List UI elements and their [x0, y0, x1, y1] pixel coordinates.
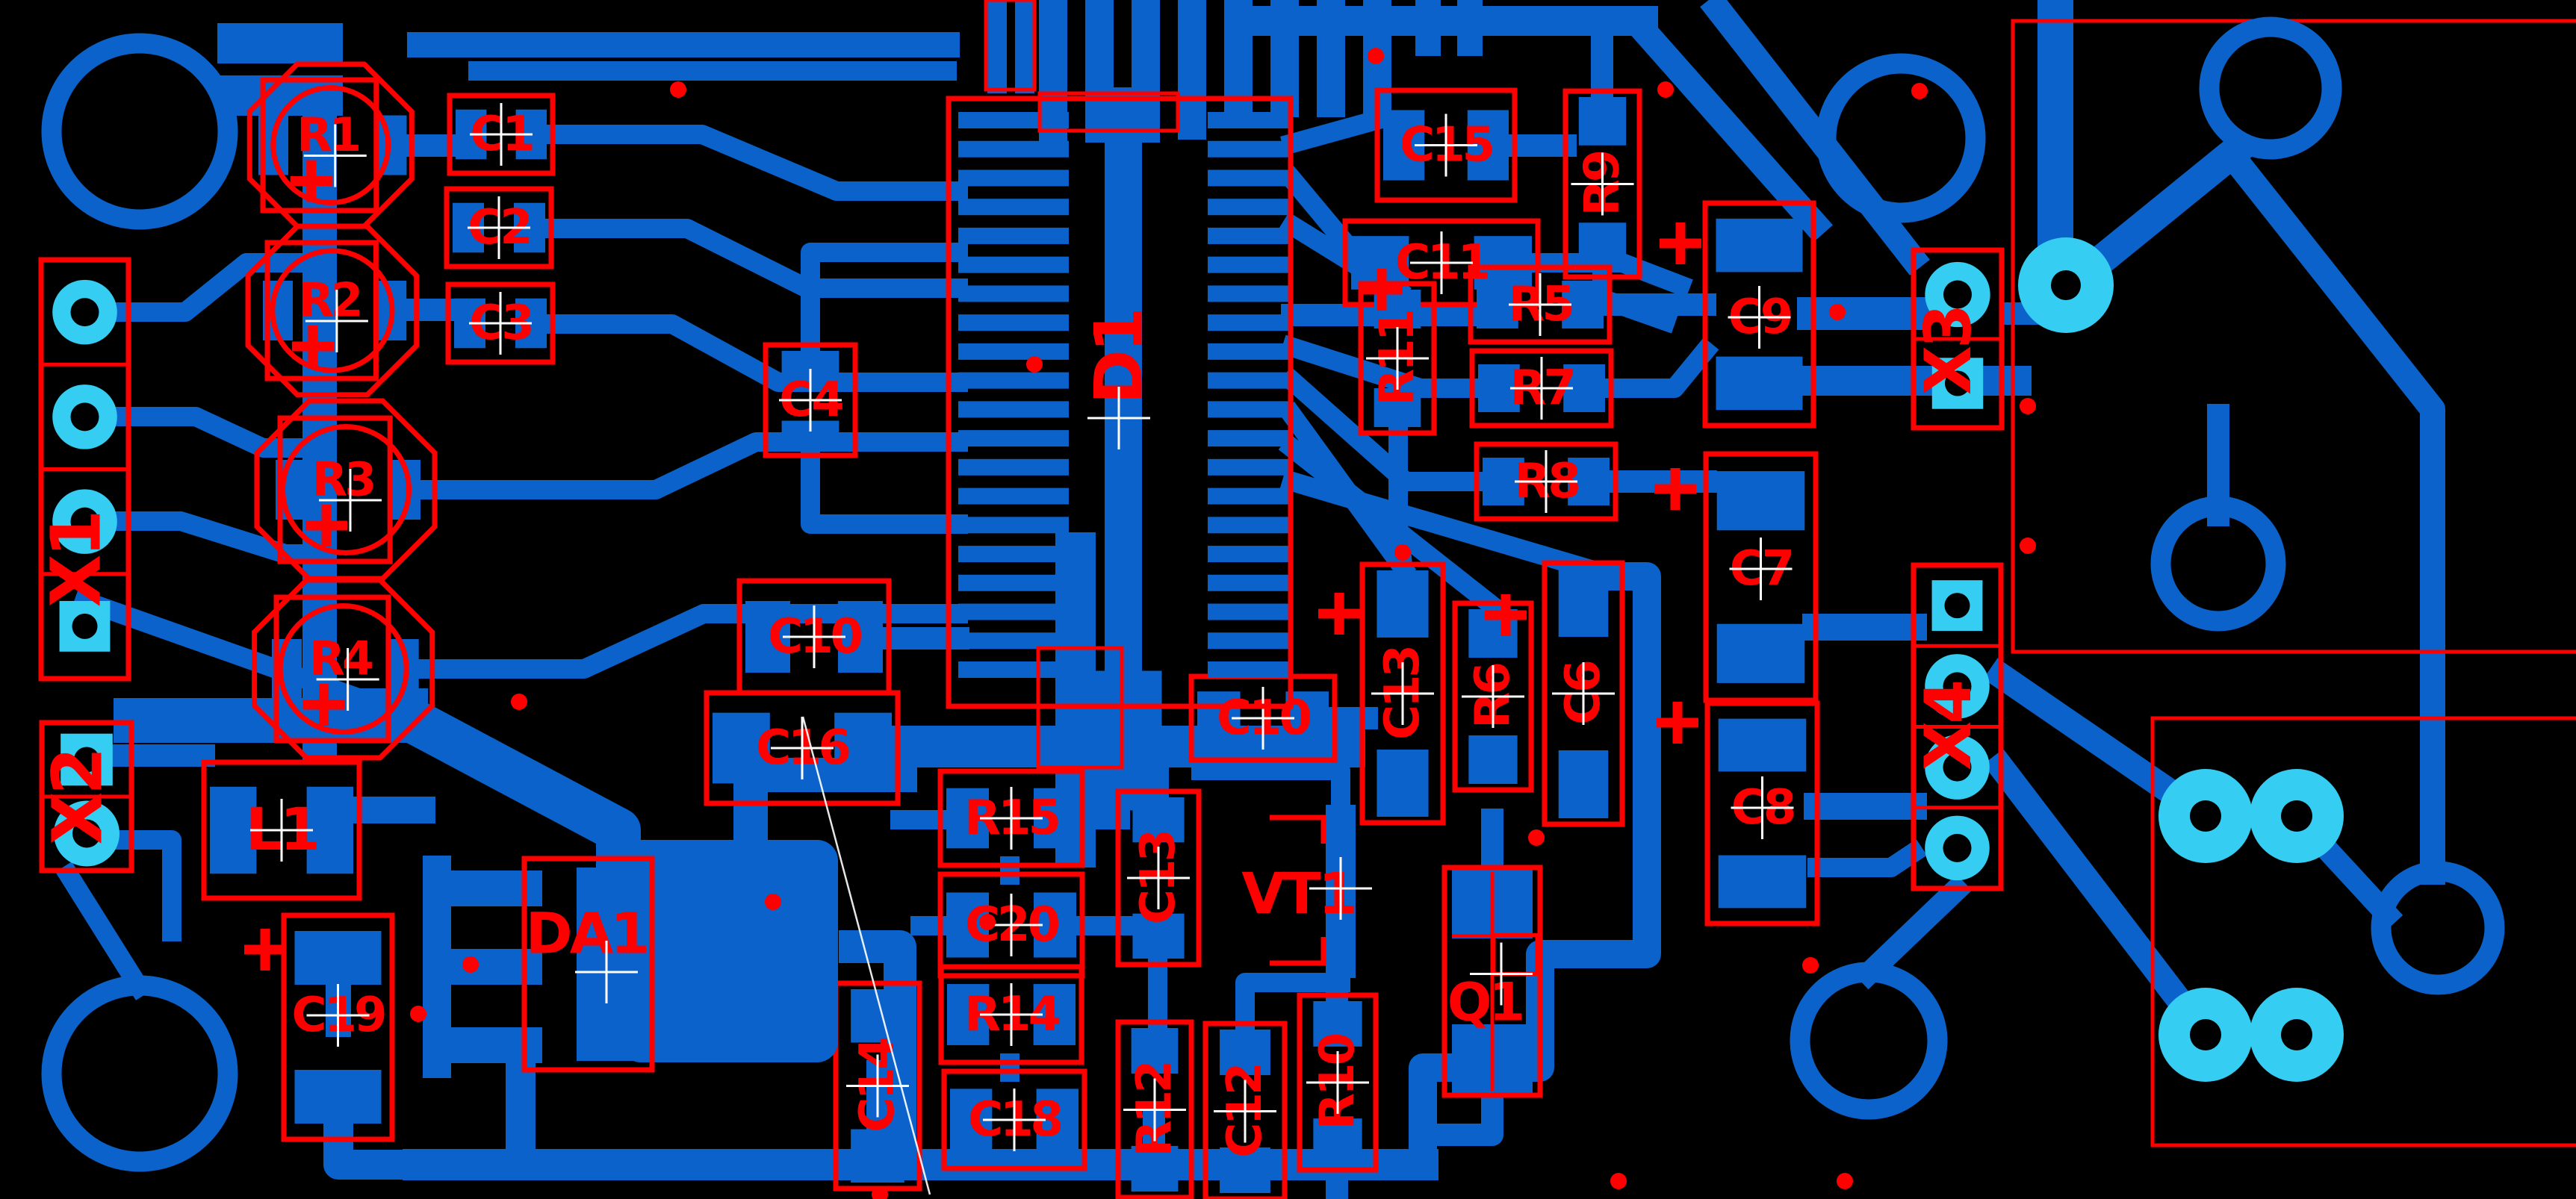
drill-hole: [1943, 834, 1972, 862]
via-marker-dot: [2020, 398, 2036, 414]
designator-label: R3: [312, 452, 374, 507]
smd-pad[interactable]: [1579, 222, 1626, 271]
ic-pad-left[interactable]: [958, 257, 1069, 273]
designator-label: DA1: [526, 900, 648, 967]
component-c20[interactable]: C20: [940, 874, 1082, 976]
pcb-layout-canvas[interactable]: R1R2R3R4C1C2C3C4C10C16C10D1C15C11R9R11R5…: [0, 0, 2576, 1199]
ic-pad-right[interactable]: [1208, 401, 1288, 417]
via-marker-dot: [1026, 356, 1043, 373]
component-x4[interactable]: X4: [1911, 565, 2001, 888]
smd-pad[interactable]: [1716, 219, 1803, 272]
component-c8[interactable]: C8: [1707, 703, 1817, 924]
component-r7[interactable]: R7: [1472, 351, 1611, 426]
component-c1[interactable]: C1: [450, 96, 553, 173]
smd-pad[interactable]: [1377, 750, 1428, 817]
ic-pad-left[interactable]: [958, 285, 1069, 302]
mounting-hole-ring[interactable]: [1826, 63, 1976, 213]
component-l1[interactable]: L1: [204, 762, 359, 898]
ic-pad-left[interactable]: [958, 228, 1069, 244]
component-c6[interactable]: C6: [1545, 563, 1622, 824]
ic-pad-left[interactable]: [958, 459, 1069, 476]
via-marker-dot: [1829, 304, 1846, 320]
ic-pad-right[interactable]: [1208, 517, 1288, 533]
component-c2[interactable]: C2: [447, 189, 551, 267]
ic-pad-left[interactable]: [958, 661, 1069, 678]
ic-pad-left[interactable]: [958, 604, 1069, 620]
designator-label: X4: [1911, 682, 1986, 770]
component-x3[interactable]: X3: [1911, 250, 2002, 428]
ic-pad-right[interactable]: [1208, 112, 1288, 128]
ic-pad-right[interactable]: [1208, 632, 1288, 649]
ic-pad-left[interactable]: [958, 141, 1069, 158]
smd-pad[interactable]: [1719, 719, 1807, 772]
via-marker-dot: [1911, 83, 1928, 99]
ic-pad-right[interactable]: [1208, 604, 1288, 620]
via-marker-dot: [1528, 829, 1545, 846]
ic-pad-left[interactable]: [958, 401, 1069, 417]
component-r6[interactable]: R6: [1455, 603, 1531, 790]
via-marker-dot: [1802, 957, 1819, 974]
ic-pad-right[interactable]: [1208, 575, 1288, 591]
ic-pad-left[interactable]: [958, 488, 1069, 505]
component-r1[interactable]: R1: [249, 64, 412, 226]
via-marker-dot: [1368, 48, 1384, 64]
designator-label: X1: [36, 513, 116, 608]
designator-label: Q1: [1447, 972, 1522, 1033]
ic-pad-right[interactable]: [1208, 228, 1288, 244]
via-marker-dot: [979, 914, 996, 930]
drill-hole: [1945, 593, 1970, 618]
component-c7[interactable]: C7: [1706, 454, 1816, 700]
ic-pad-right[interactable]: [1208, 459, 1288, 476]
polarity-plus-mark: [1657, 702, 1698, 744]
silkscreen-outline: [2013, 21, 2576, 652]
component-r10[interactable]: R10: [1300, 995, 1376, 1170]
smd-pad[interactable]: [1579, 97, 1626, 146]
smd-pad[interactable]: [1716, 357, 1803, 411]
dual-through-hole-pad[interactable]: [2158, 769, 2344, 863]
drill-hole: [72, 614, 98, 639]
mounting-hole-ring[interactable]: [2209, 27, 2332, 149]
designator-label: R4: [309, 632, 373, 686]
component-r14[interactable]: R14: [941, 967, 1081, 1062]
smd-pad[interactable]: [295, 1070, 382, 1124]
smd-pad[interactable]: [1468, 735, 1517, 784]
via-marker-dot: [670, 81, 686, 98]
mounting-hole-ring[interactable]: [52, 43, 228, 219]
component-q1[interactable]: Q1: [1444, 868, 1540, 1095]
ic-pad-left[interactable]: [958, 575, 1069, 591]
via-marker-dot: [1394, 544, 1411, 561]
polarity-plus-mark: [1318, 593, 1360, 635]
via-marker-dot: [1610, 1173, 1627, 1189]
ic-pad-right[interactable]: [1208, 285, 1288, 302]
ic-pad-left[interactable]: [958, 314, 1069, 331]
smd-pad[interactable]: [1719, 856, 1807, 909]
designator-label: X2: [38, 750, 118, 845]
component-r8[interactable]: R8: [1477, 444, 1616, 519]
ic-pad-left[interactable]: [958, 546, 1069, 562]
ic-pad-left[interactable]: [958, 430, 1069, 446]
drill-hole: [1943, 281, 1972, 309]
ic-pad-right[interactable]: [1208, 199, 1288, 215]
component-c13[interactable]: C13: [1362, 564, 1443, 823]
polarity-plus-mark: [244, 929, 286, 971]
pcb-svg-canvas[interactable]: R1R2R3R4C1C2C3C4C10C16C10D1C15C11R9R11R5…: [0, 0, 2576, 1199]
drill-hole: [2051, 270, 2081, 300]
ic-pad-left[interactable]: [958, 199, 1069, 215]
ic-pad-right[interactable]: [1208, 257, 1288, 273]
ic-pad-right[interactable]: [1208, 141, 1288, 158]
designator-label: X3: [1911, 307, 1986, 395]
ic-pad-right[interactable]: [1208, 373, 1288, 389]
ic-pad-left[interactable]: [958, 517, 1069, 533]
ic-pad-right[interactable]: [1208, 430, 1288, 446]
via-marker-dot: [462, 956, 479, 973]
ic-pad-left[interactable]: [958, 169, 1069, 186]
polarity-plus-mark: [1660, 222, 1701, 264]
component-c15[interactable]: C15: [1377, 90, 1515, 200]
ic-pad-right[interactable]: [1208, 314, 1288, 331]
component-r9[interactable]: R9: [1565, 91, 1639, 277]
ic-pad-right[interactable]: [1208, 488, 1288, 505]
smd-pad[interactable]: [1559, 569, 1609, 637]
smd-pad[interactable]: [1717, 624, 1805, 683]
designator-label: R1: [297, 108, 359, 162]
smd-pad[interactable]: [295, 931, 382, 985]
via-marker-dot: [410, 1006, 426, 1022]
mounting-hole-ring[interactable]: [1800, 972, 1937, 1109]
ic-pad-left[interactable]: [958, 343, 1069, 360]
ic-pad-right[interactable]: [1208, 169, 1288, 186]
via-marker-dot: [511, 694, 527, 710]
mounting-hole-ring[interactable]: [52, 985, 228, 1162]
component-c3[interactable]: C3: [448, 284, 553, 362]
via-marker-dot: [1837, 1173, 1853, 1189]
smd-pad[interactable]: [1559, 750, 1609, 818]
component-r4[interactable]: R4: [255, 580, 432, 758]
drill-hole: [71, 298, 99, 326]
ic-pad-left[interactable]: [958, 112, 1069, 128]
dual-through-hole-pad[interactable]: [2158, 988, 2344, 1082]
smd-pad[interactable]: [1717, 471, 1805, 530]
designator-label: VT1: [1241, 860, 1355, 926]
via-marker-dot: [1657, 81, 1674, 98]
component-c19[interactable]: C19: [284, 915, 392, 1139]
mounting-hole-ring[interactable]: [2381, 871, 2495, 985]
ic-pad-right[interactable]: [1208, 343, 1288, 360]
drill-hole: [71, 402, 99, 431]
component-r2[interactable]: R2: [248, 226, 417, 395]
ic-pad-left[interactable]: [958, 373, 1069, 389]
via-marker-dot: [765, 894, 781, 910]
smd-pad[interactable]: [1377, 570, 1428, 638]
ic-pad-right[interactable]: [1208, 546, 1288, 562]
ic-pad-right[interactable]: [1208, 661, 1288, 678]
via-marker-dot: [2020, 538, 2036, 554]
component-c13[interactable]: C13: [1118, 791, 1199, 965]
component-c10[interactable]: C10: [739, 581, 889, 693]
smd-pad[interactable]: [851, 1130, 904, 1183]
component-da1[interactable]: DA1: [524, 840, 838, 1070]
component-r3[interactable]: R3: [257, 401, 435, 579]
designator-label: R2: [298, 273, 360, 328]
